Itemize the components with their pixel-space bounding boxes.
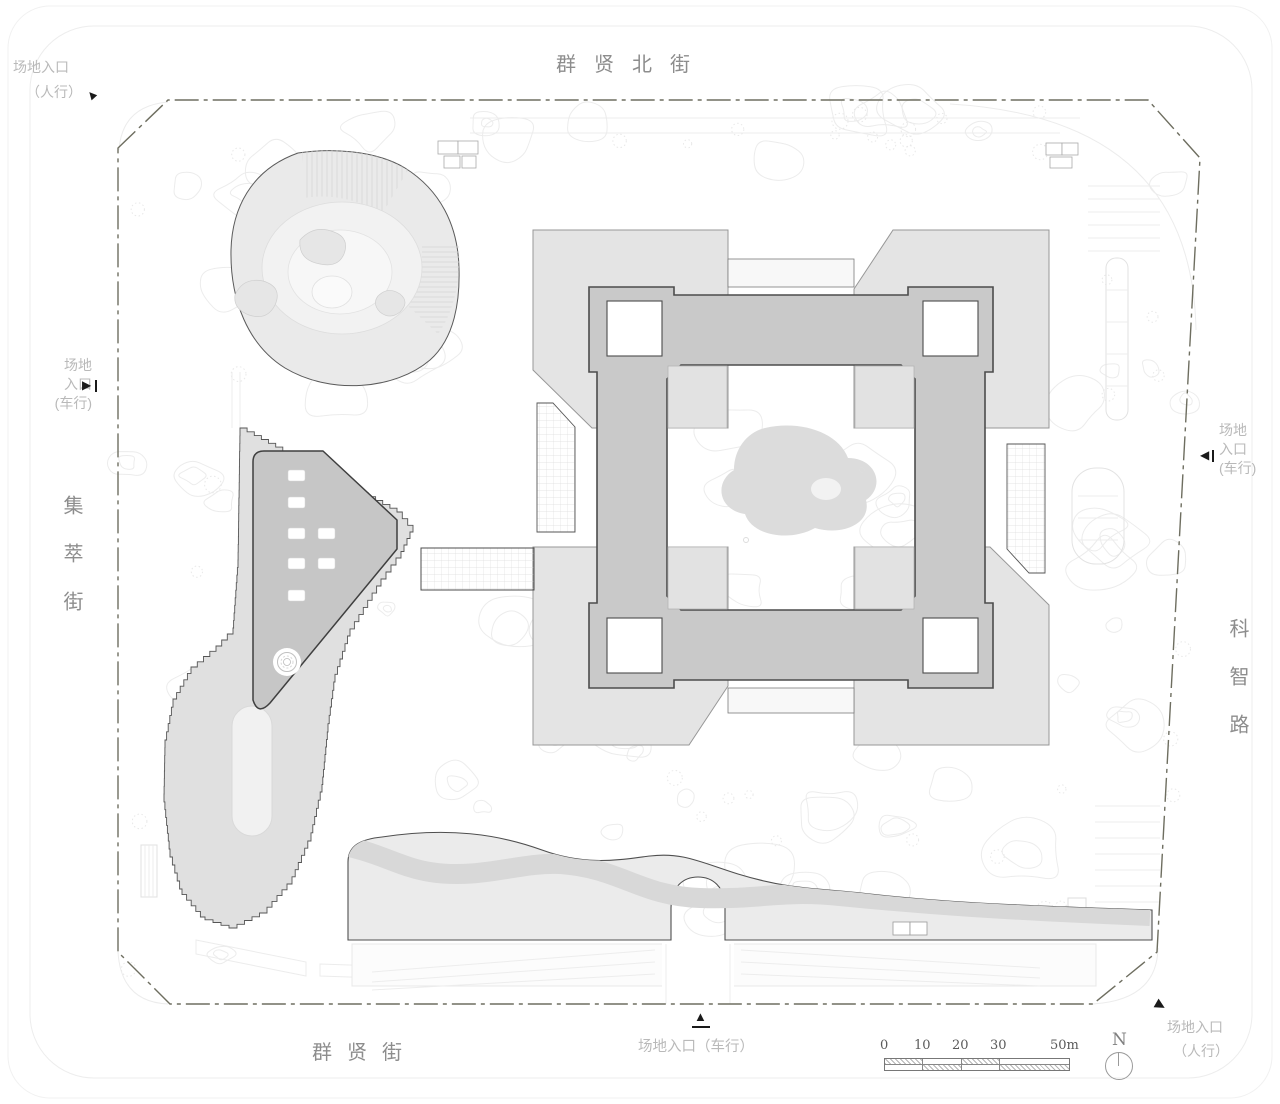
tree-icon	[745, 791, 753, 799]
tree-icon	[1153, 370, 1164, 381]
texture-blob	[981, 817, 1058, 878]
tree-icon	[886, 140, 896, 150]
triangle-glyph: ▲	[82, 85, 100, 103]
entrance-label-nw-pedestrian-2: （人行）	[26, 83, 82, 102]
round-skylight	[273, 648, 301, 676]
texture-blob	[492, 611, 529, 646]
north-arrow-circle	[1105, 1052, 1133, 1080]
scale-bar: 0 10 20 30 50m	[884, 1038, 1076, 1072]
scale-tick-label: 10	[914, 1038, 931, 1053]
berm-outline	[348, 832, 1152, 940]
texture-blob	[179, 467, 206, 485]
tree-icon	[232, 148, 245, 161]
berm-pavilion	[893, 922, 927, 935]
tree-icon	[613, 134, 626, 147]
pond-detail	[744, 538, 749, 543]
tree-icon	[831, 131, 839, 139]
entrance-label-se-pedestrian: 场地入口	[1167, 1018, 1223, 1037]
street-name-east: 科智路	[1223, 618, 1252, 762]
entrance-arrow-se-icon: ▶	[1156, 998, 1166, 1011]
texture-blob	[474, 800, 492, 812]
texture-blob	[801, 797, 854, 843]
triangle-glyph: ▶	[82, 378, 91, 392]
triangle-glyph: ▲	[694, 1009, 707, 1024]
texture-blob	[482, 118, 493, 127]
entrance-label-line: (车行)	[36, 394, 92, 413]
entrance-label-east-vehicular: 场地 入口 (车行)	[1219, 421, 1256, 478]
entrance-arrow-west-bar	[95, 380, 97, 392]
texture-blob	[876, 486, 910, 518]
texture-blob	[1170, 391, 1199, 414]
entrance-label-line: 入口	[1219, 440, 1256, 459]
texture-blob	[601, 824, 623, 840]
entrance-label-south-vehicular: 场地入口（车行）	[638, 1038, 754, 1057]
tree-icon	[991, 850, 1005, 864]
texture-blob	[1147, 539, 1186, 575]
entrance-arrow-east-bar	[1212, 450, 1214, 462]
entrance-arrow-west-icon: ▶	[82, 379, 91, 392]
pond-island	[811, 478, 841, 500]
north-arrow: N	[1096, 1030, 1144, 1086]
triangle-glyph: ◀	[1200, 448, 1209, 462]
texture-blob	[881, 520, 920, 547]
tree-icon	[1164, 732, 1178, 746]
entrance-label-se-pedestrian-2: （人行）	[1173, 1042, 1229, 1061]
texture-blob	[1002, 841, 1042, 869]
texture-blob	[447, 776, 467, 792]
texture-blob	[1058, 674, 1080, 692]
footbridge	[421, 548, 534, 590]
texture-blob	[754, 141, 804, 180]
texture-blob	[830, 86, 887, 136]
entrance-label-line: 场地	[36, 356, 92, 375]
street-name-west: 集萃街	[57, 495, 86, 639]
garden-planting	[235, 280, 278, 316]
tree-icon	[121, 962, 135, 976]
texture-blob	[677, 789, 694, 807]
site-plan-drawing	[0, 0, 1280, 1104]
texture-blob	[174, 172, 201, 199]
service-kiosks	[438, 141, 1078, 168]
tree-icon	[231, 367, 246, 382]
texture-blob	[1180, 393, 1192, 405]
north-arrow-label: N	[1112, 1030, 1127, 1050]
texture-blob	[1118, 711, 1133, 722]
scale-bar-graphic	[884, 1058, 1070, 1071]
texture-blob	[1073, 508, 1128, 551]
texture-blob	[383, 605, 391, 612]
texture-blob	[902, 99, 936, 124]
texture-blob	[340, 111, 394, 152]
link-block-south	[728, 688, 854, 713]
tree-icon	[191, 566, 202, 577]
texture-blob	[174, 461, 224, 496]
tree-icon	[684, 140, 692, 148]
scale-tick-label: 50m	[1050, 1038, 1079, 1053]
entrance-arrow-nw-icon: ▲	[85, 88, 98, 101]
texture-blob	[378, 602, 395, 616]
tree-icon	[697, 812, 707, 822]
texture-blob	[929, 767, 972, 801]
tree-icon	[131, 203, 144, 216]
tree-icon	[723, 793, 734, 804]
sunken-garden	[231, 150, 459, 385]
texture-blob	[204, 490, 233, 512]
tree-icon	[1176, 642, 1191, 657]
scale-tick-label: 0	[880, 1038, 888, 1053]
texture-blob	[119, 455, 135, 469]
entrance-label-line: 场地	[1219, 421, 1256, 440]
tree-icon	[205, 476, 222, 493]
texture-blob	[435, 760, 478, 799]
site-plan-canvas: 群贤北街 群贤街 集萃街 科智路 场地入口 （人行） ▲ 场地 入口 (车行) …	[0, 0, 1280, 1104]
scale-tick-label: 30	[990, 1038, 1007, 1053]
scale-tick-label: 20	[952, 1038, 969, 1053]
street-name-south: 群贤街	[312, 1036, 417, 1065]
entrance-label-line: (车行)	[1219, 459, 1256, 478]
tree-icon	[667, 770, 682, 785]
texture-blob	[1106, 618, 1122, 633]
tree-icon	[132, 814, 147, 829]
entrance-arrow-south-bar	[692, 1026, 710, 1028]
texture-blob	[473, 112, 499, 136]
texture-blob	[483, 118, 534, 163]
tree-icon	[1102, 275, 1112, 285]
west-canopy	[537, 403, 575, 532]
tree-icon	[1147, 311, 1158, 322]
street-name-north: 群贤北街	[556, 48, 708, 77]
texture-blob	[1142, 360, 1159, 377]
scale-bar-labels: 0 10 20 30 50m	[884, 1038, 1076, 1054]
tree-icon	[907, 834, 919, 846]
entrance-drive	[662, 942, 734, 1004]
central-ring-building	[589, 287, 993, 688]
east-canopy	[1007, 444, 1045, 573]
tree-icon	[732, 123, 744, 135]
texture-blob	[973, 127, 987, 137]
courtyard-pond	[721, 426, 876, 536]
terrace-walk	[232, 706, 272, 836]
north-arrow-needle	[1118, 1052, 1119, 1066]
garden-pond	[312, 276, 352, 308]
texture-blob	[1100, 364, 1119, 378]
entrance-label-nw-pedestrian: 场地入口	[13, 58, 69, 77]
texture-blob	[1046, 375, 1105, 430]
tree-icon	[1167, 789, 1180, 802]
texture-blob	[1082, 514, 1150, 568]
tree-icon	[1058, 785, 1066, 793]
entrance-arrow-east-icon: ◀	[1200, 449, 1209, 462]
entrance-arrow-south-icon: ▲	[694, 1010, 707, 1023]
texture-blob	[568, 102, 608, 142]
landscape-berm	[300, 832, 1152, 1004]
link-block-north	[728, 259, 854, 287]
texture-blob	[965, 121, 992, 140]
